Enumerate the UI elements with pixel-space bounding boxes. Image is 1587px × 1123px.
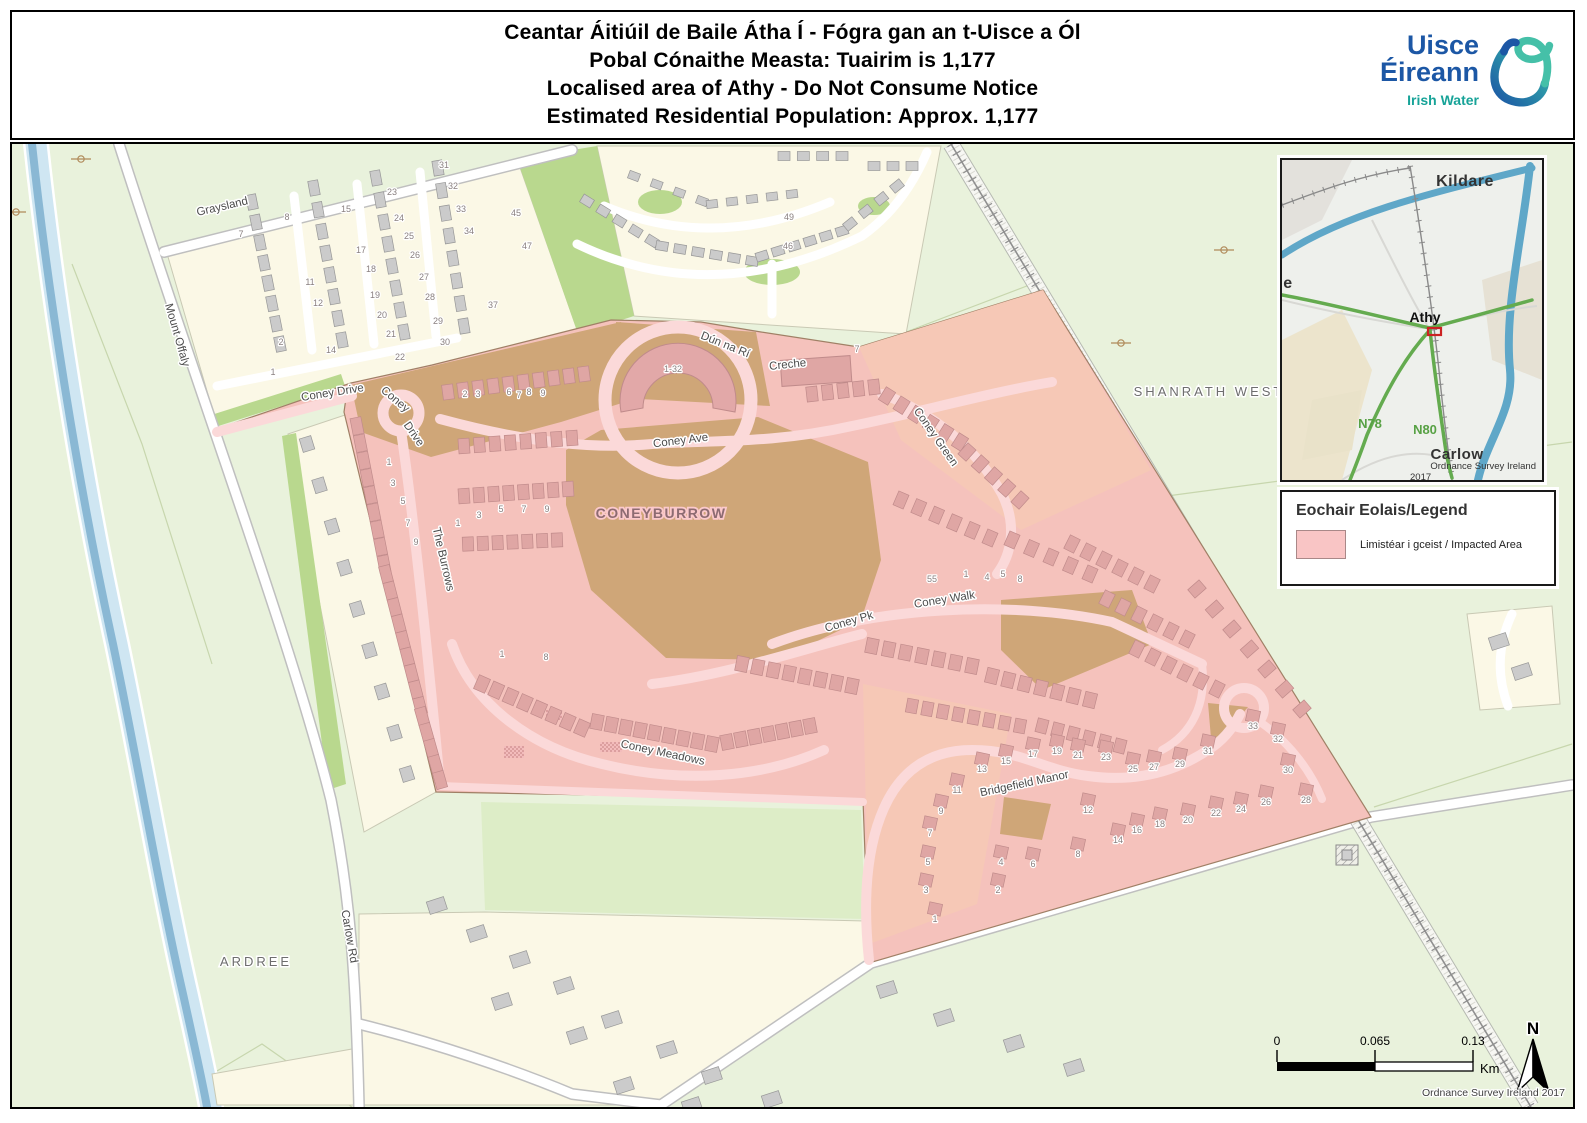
house-number: 1 — [270, 367, 275, 377]
building — [443, 228, 455, 244]
house-number: 12 — [1083, 805, 1093, 815]
building — [936, 704, 949, 720]
building — [726, 197, 738, 206]
building — [967, 710, 980, 726]
building — [532, 483, 544, 499]
building — [462, 537, 474, 551]
building — [775, 723, 790, 740]
building — [473, 487, 485, 503]
logo-word-irish-water: Irish Water — [1380, 87, 1479, 114]
house-number: 3 — [923, 885, 928, 895]
building — [948, 654, 963, 671]
building — [562, 481, 574, 497]
building — [865, 637, 880, 654]
house-number: 7 — [927, 828, 932, 838]
building — [761, 726, 776, 743]
building — [766, 192, 778, 201]
building — [386, 258, 399, 275]
building — [803, 718, 818, 735]
house-number: 47 — [522, 241, 532, 251]
house-number: 8 — [1075, 849, 1080, 859]
house-number: 18 — [366, 264, 376, 274]
building — [1013, 718, 1026, 734]
building — [551, 533, 563, 547]
house-number: 27 — [419, 272, 429, 282]
inset-label: Ordnance Survey Ireland — [1430, 461, 1536, 472]
house-number: 2 — [995, 885, 1000, 895]
building — [845, 677, 860, 694]
house-number: 6 — [1030, 859, 1035, 869]
house-number: 14 — [326, 345, 336, 355]
house-number: 5 — [400, 496, 405, 506]
building — [821, 384, 834, 400]
house-number: 9 — [413, 537, 418, 547]
building — [836, 152, 848, 161]
inset-label: N80 — [1413, 422, 1437, 437]
north-label: N — [1527, 1019, 1539, 1038]
building — [673, 244, 686, 255]
house-number: 5 — [498, 504, 503, 514]
building — [458, 488, 470, 504]
building — [487, 378, 500, 394]
house-number: 33 — [1248, 721, 1258, 731]
building — [436, 182, 448, 198]
house-number: 6 — [506, 387, 511, 397]
house-number: 17 — [1028, 749, 1038, 759]
building — [746, 194, 758, 203]
house-number: 27 — [1149, 762, 1159, 772]
building — [915, 647, 930, 664]
building — [868, 162, 880, 171]
house-number: 25 — [1128, 764, 1138, 774]
house-number: 1 — [386, 457, 391, 467]
house-number: 1 — [499, 649, 504, 659]
building — [829, 674, 844, 691]
building — [458, 438, 470, 454]
house-number: 17 — [356, 245, 366, 255]
house-number: 12 — [313, 298, 323, 308]
building — [547, 370, 560, 386]
house-number: 29 — [1175, 759, 1185, 769]
building — [662, 727, 677, 744]
house-number: 30 — [1283, 765, 1293, 775]
house-number: 20 — [377, 310, 387, 320]
building — [618, 719, 633, 736]
house-number: 26 — [410, 250, 420, 260]
house-number: 9 — [938, 806, 943, 816]
water-swoosh-icon — [1481, 30, 1557, 122]
building — [447, 250, 459, 266]
logo-word-eireann: Éireann — [1380, 59, 1479, 86]
scale-bar-white-segment — [1375, 1062, 1473, 1071]
house-number: 13 — [977, 764, 987, 774]
building — [705, 736, 720, 753]
house-number: 31 — [1203, 746, 1213, 756]
building — [535, 432, 547, 448]
building — [398, 324, 411, 341]
irish-water-logo-text: Uisce Éireann Irish Water — [1380, 32, 1479, 114]
house-number: 15 — [1001, 756, 1011, 766]
inset-label: 2017 — [1410, 472, 1431, 480]
building — [676, 730, 691, 747]
building — [734, 731, 749, 748]
building — [852, 381, 865, 397]
building — [442, 384, 455, 400]
house-number: 45 — [511, 208, 521, 218]
building — [778, 152, 790, 161]
building — [536, 533, 548, 547]
building — [868, 379, 881, 395]
house-number: 1 — [455, 518, 460, 528]
house-number: 2 — [462, 389, 467, 399]
inset-label: N78 — [1358, 416, 1382, 431]
building — [786, 189, 798, 198]
header: Ceantar Áitiúil de Baile Átha Í - Fógra … — [10, 10, 1575, 140]
legend-item: Limistéar i gceist / Impacted Area — [1296, 530, 1554, 559]
building — [837, 382, 850, 398]
building — [492, 535, 504, 549]
house-number: 14 — [1113, 835, 1123, 845]
house-number: 8 — [1017, 574, 1022, 584]
building — [709, 250, 722, 261]
house-number: 2 — [278, 337, 283, 347]
house-number: 32 — [1273, 734, 1283, 744]
building — [982, 712, 995, 728]
house-number: 30 — [440, 337, 450, 347]
house-number: 24 — [1236, 804, 1246, 814]
house-number: 3 — [390, 478, 395, 488]
building — [562, 368, 575, 384]
house-number: 19 — [1052, 746, 1062, 756]
building — [370, 170, 383, 187]
house-number: 28 — [425, 292, 435, 302]
building — [887, 162, 899, 171]
building — [633, 722, 648, 739]
house-number: 7 — [516, 390, 521, 400]
house-number: 4 — [984, 572, 989, 582]
building — [647, 725, 662, 742]
building — [727, 253, 740, 264]
house-number: 25 — [404, 231, 414, 241]
house-number: 1 — [963, 569, 968, 579]
building — [450, 273, 462, 289]
house-number: 24 — [394, 213, 404, 223]
house-number: 29 — [433, 316, 443, 326]
building — [458, 318, 470, 334]
house-number: 21 — [1073, 750, 1083, 760]
irish-water-logo: Uisce Éireann Irish Water — [1327, 24, 1557, 128]
building — [520, 434, 532, 450]
house-number: 34 — [464, 226, 474, 236]
building — [503, 485, 515, 501]
map-attribution: Ordnance Survey Ireland 2017 — [1422, 1087, 1565, 1099]
building — [881, 641, 896, 658]
house-number: 4 — [998, 857, 1003, 867]
inset-label: Athy — [1409, 309, 1440, 325]
building — [766, 662, 781, 679]
building — [782, 665, 797, 682]
building — [931, 651, 946, 668]
building — [750, 659, 765, 676]
building — [691, 247, 704, 258]
house-number: 33 — [456, 204, 466, 214]
building — [797, 152, 809, 161]
building — [789, 720, 804, 737]
building — [473, 437, 485, 453]
scale-tick-max: 0.13 — [1461, 1034, 1485, 1048]
house-number: 23 — [1101, 752, 1111, 762]
building — [655, 241, 668, 252]
map-frame: SHANRATH WESTARDREECONEYBURROW Graysland… — [10, 142, 1575, 1109]
inset-label: Kildare — [1436, 173, 1494, 190]
scale-unit: Km — [1480, 1061, 1500, 1076]
legend: Eochair Eolais/Legend Limistéar i gceist… — [1280, 490, 1556, 586]
building — [720, 734, 735, 751]
house-number: 9 — [540, 388, 545, 398]
building — [454, 295, 466, 311]
house-number: 31 — [439, 160, 449, 170]
inset-label: e — [1283, 275, 1292, 292]
impacted-area-swatch — [1296, 530, 1346, 559]
building — [690, 733, 705, 750]
house-number: 9 — [544, 504, 549, 514]
building — [522, 534, 534, 548]
house-number: 7 — [405, 518, 410, 528]
house-number: 21 — [386, 329, 396, 339]
area-label: CONEYBURROW — [596, 505, 727, 521]
building — [747, 728, 762, 745]
building — [706, 199, 718, 208]
building — [906, 162, 918, 171]
building — [477, 536, 489, 550]
house-number: 11 — [952, 785, 961, 795]
building — [965, 657, 980, 674]
building — [735, 655, 750, 672]
building — [551, 431, 563, 447]
building — [590, 714, 605, 731]
building — [382, 236, 395, 253]
building — [489, 436, 501, 452]
building — [998, 715, 1011, 731]
house-number: 16 — [1132, 825, 1142, 835]
building — [817, 152, 829, 161]
house-number: 8 — [284, 212, 289, 222]
house-number: 1 — [932, 914, 937, 924]
building — [547, 482, 559, 498]
building — [921, 701, 934, 717]
building — [517, 484, 529, 500]
house-number: 20 — [1183, 815, 1193, 825]
building — [488, 486, 500, 502]
building — [374, 192, 387, 209]
area-label: ARDREE — [220, 954, 292, 969]
house-number: 3 — [476, 510, 481, 520]
legend-title: Eochair Eolais/Legend — [1296, 502, 1554, 520]
building — [952, 707, 965, 723]
house-number: 15 — [341, 204, 351, 214]
logo-word-uisce: Uisce — [1380, 32, 1479, 59]
building — [898, 644, 913, 661]
map-sheet: Ceantar Áitiúil de Baile Átha Í - Fógra … — [0, 0, 1587, 1123]
house-number: 3 — [475, 389, 480, 399]
house-number: 11 — [305, 277, 314, 287]
house-number: 7 — [854, 344, 859, 354]
house-number: 22 — [1211, 808, 1221, 818]
house-number: 7 — [521, 504, 526, 514]
house-number: 26 — [1261, 797, 1271, 807]
building — [806, 386, 819, 402]
house-number: 23 — [387, 187, 397, 197]
house-number: 19 — [370, 290, 380, 300]
house-number: 22 — [395, 352, 405, 362]
building — [394, 302, 407, 319]
building — [439, 205, 451, 221]
impacted-area-label: Limistéar i gceist / Impacted Area — [1360, 539, 1522, 551]
inset-map: KildareeAthyN78N80CarlowOrdnance Survey … — [1280, 158, 1544, 482]
house-number: 32 — [448, 181, 458, 191]
house-number: 18 — [1155, 819, 1165, 829]
house-number: 8 — [543, 652, 548, 662]
scale-tick-0: 0 — [1274, 1034, 1281, 1048]
building — [798, 668, 813, 685]
building — [390, 280, 403, 297]
house-number: 5 — [1000, 569, 1005, 579]
house-number: 55 — [927, 574, 937, 584]
house-number: 5 — [925, 857, 930, 867]
building — [504, 435, 516, 451]
building — [378, 214, 391, 231]
house-number: 1-32 — [664, 364, 682, 374]
scale-bar-black-segment — [1277, 1062, 1375, 1071]
house-number: 37 — [488, 300, 498, 310]
area-label: SHANRATH WEST — [1134, 384, 1285, 399]
house-number: 49 — [784, 212, 794, 222]
building — [532, 372, 545, 388]
building — [604, 716, 619, 733]
scale-tick-mid: 0.065 — [1360, 1034, 1390, 1048]
inset-map-canvas: KildareeAthyN78N80CarlowOrdnance Survey … — [1282, 160, 1542, 480]
building — [905, 698, 918, 714]
house-number: 46 — [783, 241, 793, 251]
house-number: 7 — [238, 229, 243, 239]
building — [566, 430, 578, 446]
building — [578, 366, 591, 382]
house-number: 8 — [526, 387, 531, 397]
house-number: 28 — [1301, 795, 1311, 805]
building — [813, 671, 828, 688]
building — [507, 535, 519, 549]
